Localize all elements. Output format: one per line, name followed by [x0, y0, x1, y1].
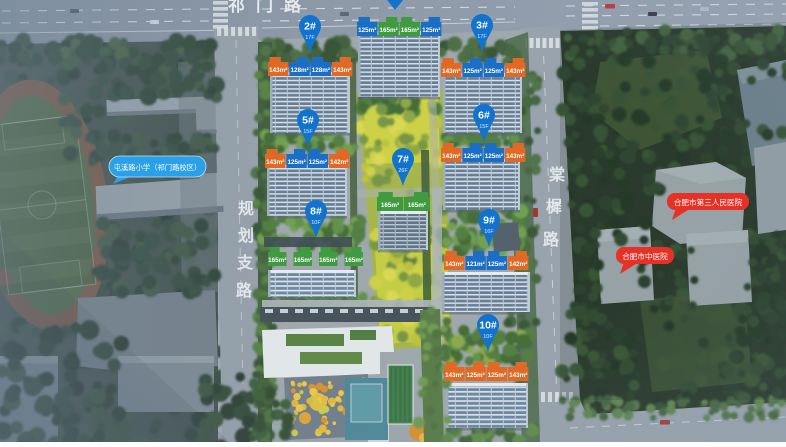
- svg-text:165m²: 165m²: [294, 257, 312, 264]
- svg-text:26F: 26F: [398, 168, 408, 174]
- svg-text:10F: 10F: [311, 220, 321, 226]
- svg-text:规: 规: [238, 200, 254, 218]
- svg-text:165m²: 165m²: [401, 27, 419, 34]
- svg-text:6#: 6#: [478, 110, 490, 122]
- svg-text:125m²: 125m²: [463, 68, 481, 75]
- svg-text:15F: 15F: [479, 124, 489, 130]
- svg-text:8#: 8#: [310, 206, 322, 218]
- svg-text:7#: 7#: [397, 154, 409, 166]
- svg-text:合肥市中医院: 合肥市中医院: [622, 251, 668, 261]
- svg-text:125m²: 125m²: [358, 27, 376, 34]
- svg-text:165m²: 165m²: [379, 27, 397, 34]
- svg-text:143m²: 143m²: [506, 153, 524, 160]
- svg-text:5#: 5#: [302, 115, 314, 127]
- svg-text:支: 支: [236, 253, 254, 272]
- svg-text:143m²: 143m²: [266, 159, 284, 166]
- svg-text:125m²: 125m²: [422, 27, 440, 34]
- svg-text:125m²: 125m²: [488, 261, 506, 268]
- svg-text:9#: 9#: [483, 215, 495, 227]
- svg-text:15F: 15F: [303, 129, 313, 135]
- svg-text:142m²: 142m²: [509, 261, 527, 268]
- svg-text:划: 划: [238, 226, 254, 245]
- svg-text:121m²: 121m²: [466, 261, 484, 268]
- svg-text:10#: 10#: [479, 320, 497, 332]
- svg-text:屯溪路小学（祁门路校区）: 屯溪路小学（祁门路校区）: [114, 163, 202, 172]
- svg-text:165m²: 165m²: [408, 202, 426, 209]
- svg-text:17F: 17F: [305, 35, 315, 41]
- svg-text:143m²: 143m²: [445, 372, 463, 379]
- svg-text:路: 路: [543, 230, 560, 249]
- svg-text:2#: 2#: [304, 21, 316, 33]
- svg-text:143m²: 143m²: [445, 261, 463, 268]
- svg-text:143m²: 143m²: [269, 67, 287, 74]
- svg-text:143m²: 143m²: [442, 68, 460, 75]
- svg-text:125m²: 125m²: [485, 68, 503, 75]
- svg-text:125m²: 125m²: [466, 372, 484, 379]
- svg-text:143m²: 143m²: [442, 153, 460, 160]
- svg-text:合肥市第三人民医院: 合肥市第三人民医院: [674, 197, 743, 207]
- svg-text:142m²: 142m²: [330, 159, 348, 166]
- svg-text:165m²: 165m²: [345, 257, 363, 264]
- svg-text:125m²: 125m²: [463, 153, 481, 160]
- svg-text:祁门路: 祁门路: [228, 0, 312, 15]
- svg-text:125m²: 125m²: [309, 159, 327, 166]
- svg-text:165m²: 165m²: [319, 257, 337, 264]
- svg-text:143m²: 143m²: [333, 67, 351, 74]
- svg-text:125m²: 125m²: [485, 153, 503, 160]
- svg-text:128m²: 128m²: [312, 67, 330, 74]
- svg-text:3#: 3#: [476, 20, 488, 32]
- svg-text:165m²: 165m²: [381, 202, 399, 209]
- svg-text:路: 路: [236, 281, 253, 300]
- svg-text:樨: 樨: [546, 197, 562, 216]
- svg-text:棠: 棠: [548, 165, 566, 184]
- svg-text:10F: 10F: [483, 334, 493, 340]
- svg-text:125m²: 125m²: [287, 159, 305, 166]
- svg-text:165m²: 165m²: [268, 257, 286, 264]
- svg-text:143m²: 143m²: [509, 372, 527, 379]
- svg-text:128m²: 128m²: [290, 67, 308, 74]
- svg-text:16F: 16F: [484, 229, 494, 235]
- svg-text:125m²: 125m²: [488, 372, 506, 379]
- svg-text:143m²: 143m²: [506, 68, 524, 75]
- svg-text:17F: 17F: [477, 34, 487, 40]
